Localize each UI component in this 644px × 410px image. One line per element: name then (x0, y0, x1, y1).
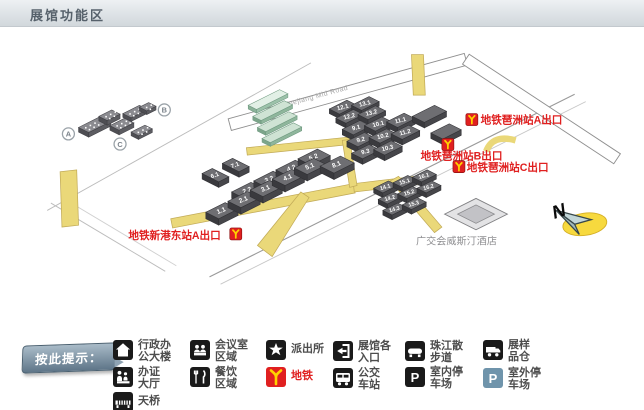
hall-block: 7.1 (222, 158, 249, 177)
facility-map-svg: Yuejiang Mid Road ABC 2.23.24.25.21.12.1… (0, 26, 644, 334)
window-dot (90, 125, 92, 127)
walkway-north-strip (411, 55, 425, 96)
service-hall-icon (113, 367, 133, 387)
legend-ribbon: 按此提示： (22, 342, 116, 373)
page-header: 展馆功能区 (0, 0, 644, 27)
window-dot (110, 114, 112, 116)
legend-item-riverside-walk: 珠江散步道 (405, 341, 463, 364)
svg-text:B: B (162, 106, 167, 115)
metro-exit-label: 地铁琶洲站C出口 (467, 161, 549, 174)
window-dot (134, 111, 136, 113)
legend-item-label: 派出所 (291, 344, 324, 356)
metro-exit-label: 地铁琶洲站A出口 (481, 114, 563, 127)
legend-item-label: 展馆各入口 (358, 341, 391, 364)
svg-text:P: P (489, 371, 498, 386)
window-dot (129, 113, 131, 115)
cluster-badge-a: A (62, 128, 74, 140)
hall-block: 6.1 (202, 168, 229, 187)
metro-icon (266, 367, 286, 387)
indoor-parking-icon: P (405, 367, 425, 387)
legend-item-label: 公交车站 (358, 368, 380, 391)
window-dot (85, 127, 87, 129)
hotel-label: 广交会威斯汀酒店 (416, 235, 497, 248)
office-building-icon (113, 340, 133, 360)
legend-item-label: 餐饮区域 (215, 367, 237, 390)
window-dot (109, 118, 111, 120)
window-dot (142, 129, 144, 131)
legend-item-bus-station: 公交车站 (333, 368, 380, 391)
legend-item-outdoor-parking: P室外停车场 (483, 368, 541, 391)
bus-station-icon (333, 368, 353, 388)
window-dot (120, 127, 122, 129)
metro-exit-marker: 地铁琶洲站A出口 (466, 114, 563, 127)
entrance-icon (333, 341, 353, 361)
legend-item-sample-warehouse: 展样品仓 (483, 340, 530, 363)
cluster-badge-c: C (114, 138, 126, 150)
outdoor-parking-icon: P (483, 368, 503, 388)
legend-item-label: 天桥 (138, 396, 160, 408)
metro-exit-marker: 地铁新港东站A出口 (128, 228, 241, 242)
window-dot (93, 127, 95, 129)
legend-item-footbridge: 天桥 (113, 392, 160, 410)
legend-item-label: 珠江散步道 (430, 341, 463, 364)
svg-text:P: P (411, 370, 420, 385)
meeting-room-icon (190, 340, 210, 360)
window-dot (126, 121, 128, 123)
window-dot (147, 127, 149, 129)
legend-bar: 按此提示： 行政办公大楼会议室区域派出所展馆各入口珠江散步道展样品仓办证大厅餐饮… (0, 334, 644, 410)
service-block (412, 105, 446, 128)
window-dot (116, 125, 118, 127)
window-dot (125, 125, 127, 127)
legend-item-label: 室外停车场 (508, 368, 541, 391)
window-dot (150, 104, 152, 106)
compass: N (549, 198, 608, 238)
facility-map: Yuejiang Mid Road ABC 2.23.24.25.21.12.1… (0, 26, 644, 334)
legend-item-indoor-parking: P室内停车场 (405, 367, 463, 390)
window-dot (141, 133, 143, 135)
cluster-badge-b: B (158, 104, 170, 116)
window-dot (115, 111, 117, 113)
metro-exit-label: 地铁新港东站A出口 (128, 229, 220, 242)
walkway-west-strip (60, 170, 78, 227)
window-dot (133, 115, 135, 117)
svg-text:A: A (66, 130, 72, 139)
legend-item-label: 办证大厅 (138, 367, 160, 390)
window-dot (146, 107, 148, 109)
legend-item-label: 会议室区域 (215, 340, 248, 363)
svg-text:C: C (117, 140, 123, 149)
window-dot (94, 122, 96, 124)
compass-n-label: N (549, 198, 569, 222)
legend-item-dining: 餐饮区域 (190, 367, 237, 390)
page-title: 展馆功能区 (30, 5, 105, 24)
police-station-icon (266, 340, 286, 360)
cluster-building (131, 125, 152, 139)
legend-item-label: 行政办公大楼 (138, 340, 171, 363)
window-dot (146, 131, 148, 133)
legend-item-label: 地铁 (291, 371, 313, 383)
window-dot (138, 132, 140, 134)
legend-item-service-hall: 办证大厅 (113, 367, 160, 390)
legend-item-label: 展样品仓 (508, 340, 530, 363)
legend-item-meeting-room: 会议室区域 (190, 340, 248, 363)
window-dot (129, 122, 131, 124)
legend-item-label: 室内停车场 (430, 367, 463, 390)
window-dot (89, 129, 91, 131)
window-dot (114, 115, 116, 117)
dining-icon (190, 367, 210, 387)
footbridge-icon (113, 392, 133, 410)
legend-item-office-building: 行政办公大楼 (113, 340, 171, 363)
legend-item-police-station: 派出所 (266, 340, 324, 360)
window-dot (150, 109, 152, 111)
building-clusters: ABC (62, 103, 170, 150)
riverside-walk-icon (405, 341, 425, 361)
legend-item-entrance: 展馆各入口 (333, 341, 391, 364)
metro-exit-marker: 地铁琶洲站C出口 (453, 161, 549, 174)
legend-item-metro: 地铁 (266, 367, 313, 387)
window-dot (105, 116, 107, 118)
exhibition-map-page: { "header": { "title": "展馆功能区" }, "map":… (0, 0, 644, 410)
window-dot (98, 124, 100, 126)
sample-warehouse-icon (483, 340, 503, 360)
window-dot (121, 123, 123, 125)
window-dot (138, 113, 140, 115)
